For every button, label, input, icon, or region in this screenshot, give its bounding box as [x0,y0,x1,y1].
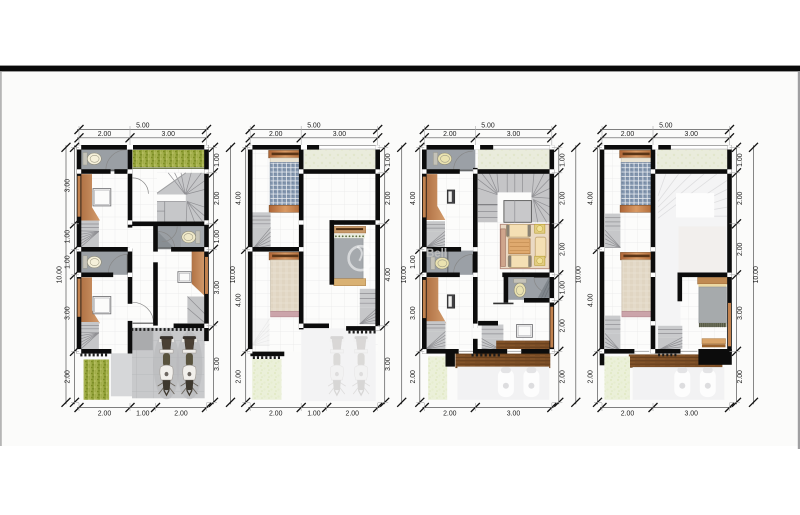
svg-text:5.00: 5.00 [659,122,673,129]
svg-text:5.00: 5.00 [307,122,321,129]
svg-text:4.00: 4.00 [410,191,417,205]
svg-text:2.00: 2.00 [345,410,359,417]
svg-text:3.00: 3.00 [410,306,417,320]
svg-text:1.00: 1.00 [214,153,221,167]
svg-text:2.00: 2.00 [559,370,566,384]
svg-text:2.00: 2.00 [98,131,112,138]
svg-text:1.00: 1.00 [214,230,221,244]
svg-text:1.00: 1.00 [65,255,72,269]
svg-text:4.00: 4.00 [588,293,595,307]
svg-text:3.00: 3.00 [684,410,698,417]
svg-text:2.00: 2.00 [174,410,188,417]
svg-text:3.00: 3.00 [214,357,221,371]
svg-text:5.00: 5.00 [136,122,150,129]
svg-text:2.00: 2.00 [214,191,221,205]
svg-text:2.00: 2.00 [621,410,635,417]
svg-text:2.00: 2.00 [236,370,243,384]
svg-text:3.00: 3.00 [65,179,72,193]
svg-text:2.00: 2.00 [269,131,283,138]
svg-text:10.00: 10.00 [575,266,582,283]
svg-text:3.00: 3.00 [737,306,744,320]
svg-text:Bell: Bell [426,248,447,260]
svg-text:1.00: 1.00 [559,153,566,167]
svg-text:2.00: 2.00 [737,191,744,205]
svg-text:4.00: 4.00 [588,191,595,205]
svg-text:10.00: 10.00 [230,266,237,283]
svg-text:2.00: 2.00 [269,410,283,417]
svg-text:3.00: 3.00 [684,131,698,138]
svg-text:1.00: 1.00 [136,410,150,417]
svg-text:1.00: 1.00 [559,281,566,295]
svg-text:2.00: 2.00 [737,370,744,384]
svg-text:2.00: 2.00 [443,131,457,138]
svg-text:2.00: 2.00 [621,131,635,138]
svg-text:3.00: 3.00 [507,131,521,138]
svg-text:10.00: 10.00 [401,266,408,283]
svg-text:1.00: 1.00 [307,410,321,417]
svg-text:2.00: 2.00 [559,242,566,256]
svg-text:2.00: 2.00 [559,191,566,205]
svg-text:1.00: 1.00 [410,255,417,269]
svg-text:4.00: 4.00 [236,293,243,307]
svg-text:3.00: 3.00 [161,131,175,138]
svg-text:4.00: 4.00 [385,268,392,282]
svg-text:2.00: 2.00 [385,191,392,205]
svg-text:3.00: 3.00 [507,410,521,417]
svg-text:2.00: 2.00 [559,319,566,333]
svg-text:2.00: 2.00 [98,410,112,417]
svg-text:2.00: 2.00 [443,410,457,417]
svg-text:10.00: 10.00 [753,266,760,283]
svg-text:2.00: 2.00 [737,242,744,256]
svg-text:5.00: 5.00 [481,122,495,129]
svg-text:3.00: 3.00 [385,357,392,371]
svg-text:10.00: 10.00 [57,266,64,283]
svg-text:1.00: 1.00 [385,153,392,167]
svg-text:2.00: 2.00 [65,370,72,384]
svg-text:4.00: 4.00 [236,191,243,205]
svg-text:3.00: 3.00 [333,131,347,138]
svg-text:1.00: 1.00 [65,230,72,244]
svg-text:3.00: 3.00 [65,306,72,320]
svg-text:3.00: 3.00 [214,281,221,295]
svg-text:1.00: 1.00 [737,153,744,167]
svg-text:2.00: 2.00 [410,370,417,384]
svg-text:2.00: 2.00 [588,370,595,384]
